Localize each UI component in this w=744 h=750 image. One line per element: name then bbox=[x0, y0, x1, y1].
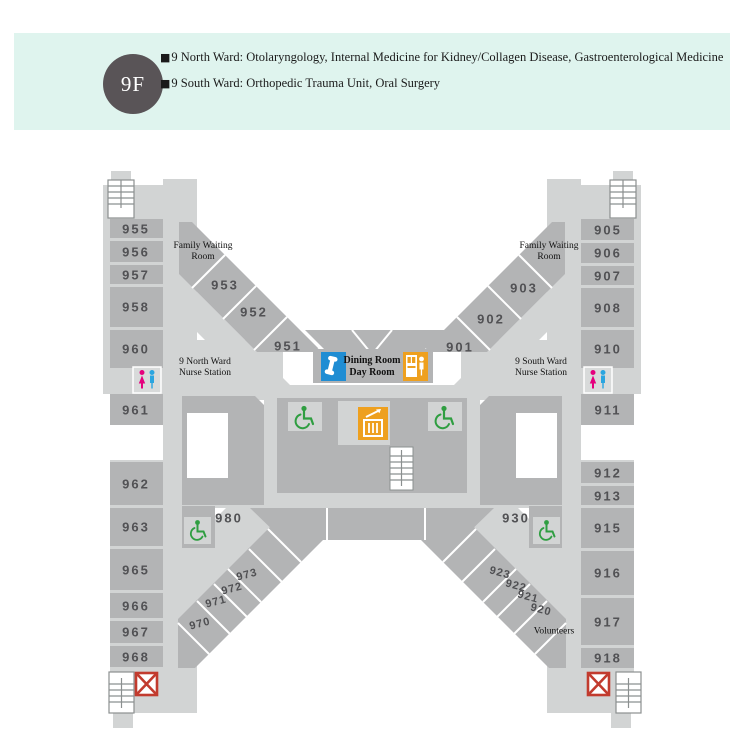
stairs-icon-bottom-left bbox=[109, 672, 134, 713]
room-label-913: 913 bbox=[594, 489, 622, 504]
room-label-968: 968 bbox=[122, 650, 150, 665]
floor-map-page: 9F ■9 North Ward: Otolaryngology, Intern… bbox=[0, 0, 744, 750]
room-label-930: 930 bbox=[502, 511, 530, 526]
room-label-908: 908 bbox=[594, 301, 622, 316]
right-column-gap bbox=[581, 424, 647, 460]
emergency-exit-icon-right bbox=[588, 673, 609, 695]
room-label-902: 902 bbox=[477, 312, 505, 327]
stairs-icon-bottom-right bbox=[616, 672, 641, 713]
public-telephone-icon bbox=[321, 352, 346, 381]
stairs-icon-center bbox=[390, 447, 413, 490]
room-label-906: 906 bbox=[594, 246, 622, 261]
room-label-903: 903 bbox=[510, 281, 538, 296]
emergency-exit-icon-left bbox=[136, 673, 157, 695]
volunteers-label: Volunteers bbox=[534, 627, 574, 638]
restroom-icon-north bbox=[133, 367, 161, 393]
room-label-910: 910 bbox=[594, 342, 622, 357]
nurse-station-north-label: 9 North Ward Nurse Station bbox=[179, 357, 231, 379]
nurse-station-south-label: 9 South Ward Nurse Station bbox=[515, 357, 567, 379]
room-label-960: 960 bbox=[122, 342, 150, 357]
dining-day-room-label: Dining Room Day Room bbox=[344, 355, 401, 379]
room-label-953: 953 bbox=[211, 278, 239, 293]
room-label-918: 918 bbox=[594, 651, 622, 666]
stairs-icon-top-left bbox=[108, 180, 134, 218]
room-label-917: 917 bbox=[594, 615, 622, 630]
ward-band-top-center bbox=[305, 330, 452, 352]
room-label-966: 966 bbox=[122, 599, 150, 614]
room-label-916: 916 bbox=[594, 566, 622, 581]
room-label-965: 965 bbox=[122, 563, 150, 578]
ward-band-bottom-center bbox=[250, 508, 494, 540]
room-label-962: 962 bbox=[122, 477, 150, 492]
emergency-exit-icons bbox=[136, 673, 609, 695]
room-label-956: 956 bbox=[122, 245, 150, 260]
room-label-952: 952 bbox=[240, 305, 268, 320]
elevator-icon bbox=[358, 407, 388, 440]
room-label-915: 915 bbox=[594, 521, 622, 536]
room-label-961: 961 bbox=[122, 403, 150, 418]
room-label-980: 980 bbox=[215, 511, 243, 526]
restroom-icon-south bbox=[584, 367, 612, 393]
family-waiting-room-label-north: Family Waiting Room bbox=[174, 241, 233, 263]
left-column-gap bbox=[97, 424, 163, 460]
room-label-907: 907 bbox=[594, 269, 622, 284]
room-label-958: 958 bbox=[122, 300, 150, 315]
stairs-icon-top-right bbox=[610, 180, 636, 218]
vending-machine-icon bbox=[403, 352, 428, 381]
room-label-951: 951 bbox=[274, 339, 302, 354]
room-label-911: 911 bbox=[595, 403, 622, 418]
room-label-967: 967 bbox=[122, 625, 150, 640]
room-label-912: 912 bbox=[594, 466, 622, 481]
room-label-901: 901 bbox=[446, 340, 474, 355]
room-label-957: 957 bbox=[122, 268, 150, 283]
family-waiting-room-label-south: Family Waiting Room bbox=[520, 241, 579, 263]
room-label-963: 963 bbox=[122, 520, 150, 535]
room-label-955: 955 bbox=[122, 222, 150, 237]
room-label-905: 905 bbox=[594, 223, 622, 238]
